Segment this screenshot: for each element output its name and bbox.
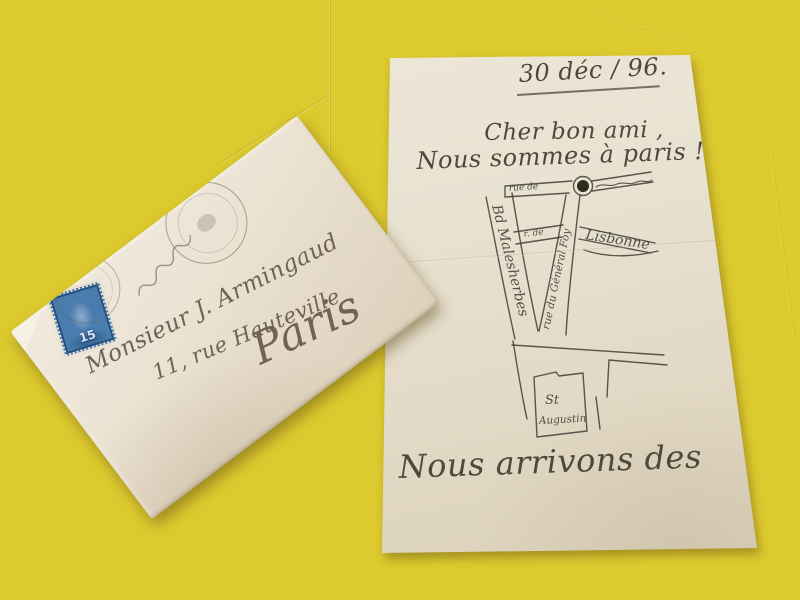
photo-background: 30 déc / 96. Cher bon ami , Nous sommes … [0, 0, 800, 600]
envelope-shadow: 15 Monsieur J. Armingaud 11, rue Hautevi… [0, 0, 800, 600]
postmark-icon [39, 242, 134, 337]
envelope: 15 Monsieur J. Armingaud 11, rue Hautevi… [10, 116, 438, 520]
postmark-inner-ring [53, 255, 122, 324]
